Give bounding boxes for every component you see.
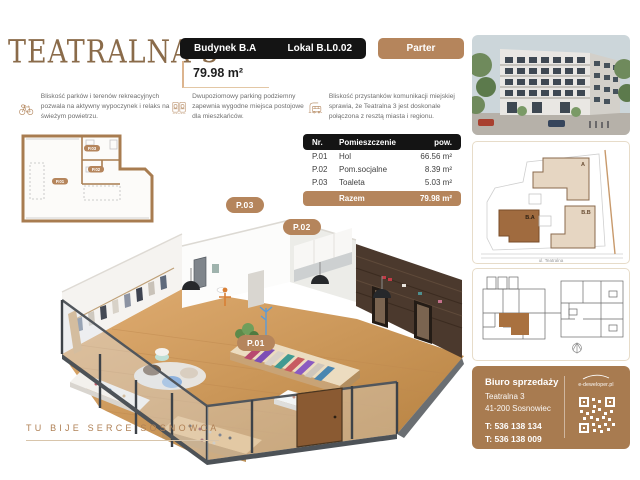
building-render-photo <box>472 35 630 135</box>
room-tag-p01: P.01 <box>237 335 275 351</box>
vendor-roof-icon <box>581 374 611 380</box>
parking-icon <box>172 92 186 124</box>
building-label: Budynek B.A <box>194 43 256 54</box>
feature-parks: Bliskość parków i terenów rekreacyjnych … <box>18 92 170 126</box>
row-name: Pom.socjalne <box>339 165 413 174</box>
room-tag-p03: P.03 <box>226 197 264 213</box>
feature-parking-text: Dwupoziomowy parking podziemny zapewnia … <box>192 92 304 124</box>
contact-title: Biuro sprzedaży <box>485 377 558 388</box>
total-area-label: 79.98 m² <box>182 61 269 88</box>
room-tag-p02: P.02 <box>283 219 321 235</box>
contact-street: Teatralna 3 <box>485 391 558 403</box>
contact-divider <box>564 376 565 438</box>
feature-parks-text: Bliskość parków i terenów rekreacyjnych … <box>41 92 170 126</box>
blue-car <box>548 120 565 127</box>
bicycle-icon <box>18 92 35 126</box>
phone-2: T: 536 138 009 <box>485 433 542 446</box>
row-nr: P.03 <box>303 178 339 187</box>
brochure-page: TEATRALNA 3 Budynek B.A Lokal B.L0.02 Pa… <box>0 0 640 480</box>
brand-logo: TEATRALNA 3 <box>8 34 176 88</box>
feature-transit-text: Bliskość przystanków komunikacji miejski… <box>329 92 464 124</box>
site-label-a: A <box>581 162 585 168</box>
city-tagline: TU BIJE SERCE SOSNOWCA <box>26 423 219 441</box>
sales-office: Biuro sprzedaży Teatralna 3 41-200 Sosno… <box>485 377 558 414</box>
feature-transit: Bliskość przystanków komunikacji miejski… <box>308 92 464 124</box>
floor-overview-card <box>472 268 630 361</box>
qr-code <box>578 396 616 434</box>
row-nr: P.02 <box>303 165 339 174</box>
vendor-logo: e-deweloper.pl <box>570 374 622 388</box>
vendor-logo-text: e-deweloper.pl <box>570 382 622 388</box>
table-row: P.03 Toaleta 5.03 m² <box>303 176 461 189</box>
floor-pill: Parter <box>378 38 464 59</box>
site-label-bb: B.B <box>581 210 591 216</box>
row-nr: P.01 <box>303 152 339 161</box>
contact-city: 41-200 Sosnowiec <box>485 403 558 415</box>
phone-1: T: 536 138 134 <box>485 420 542 433</box>
row-area: 8.39 m² <box>413 165 461 174</box>
site-plan-graphic: A B.B B.A ul. Teatralna <box>473 142 629 263</box>
row-area: 5.03 m² <box>413 178 461 187</box>
rooms-table-header: Nr. Pomieszczenie pow. <box>303 134 461 150</box>
highlighted-unit <box>499 313 529 335</box>
row-area: 66.56 m² <box>413 152 461 161</box>
sketch-label-p03: P.03 <box>88 146 97 151</box>
contact-phones: T: 536 138 134 T: 536 138 009 <box>485 420 542 446</box>
feature-parking: Dwupoziomowy parking podziemny zapewnia … <box>172 92 304 124</box>
table-row: P.01 Hol 66.56 m² <box>303 150 461 163</box>
table-row: P.02 Pom.socjalne 8.39 m² <box>303 163 461 176</box>
red-car <box>478 119 494 126</box>
floor-overview-graphic <box>473 269 629 360</box>
bus-icon <box>308 92 323 124</box>
sketch-label-p02: P.02 <box>92 167 101 172</box>
building-render-graphic <box>472 35 630 135</box>
unit-header-pill: Budynek B.A Lokal B.L0.02 <box>180 38 366 59</box>
site-label-ba: B.A <box>525 215 535 221</box>
unit-label: Lokal B.L0.02 <box>288 43 352 54</box>
site-plan-card: A B.B B.A ul. Teatralna <box>472 141 630 264</box>
col-nr: Nr. <box>303 138 339 147</box>
street-label: ul. Teatralna <box>539 258 564 263</box>
col-name: Pomieszczenie <box>339 138 413 147</box>
sketch-label-p01: P.01 <box>56 179 65 184</box>
row-name: Hol <box>339 152 413 161</box>
contact-card: Biuro sprzedaży Teatralna 3 41-200 Sosno… <box>472 366 630 449</box>
col-area: pow. <box>413 138 461 147</box>
row-name: Toaleta <box>339 178 413 187</box>
compass-icon <box>573 343 582 354</box>
